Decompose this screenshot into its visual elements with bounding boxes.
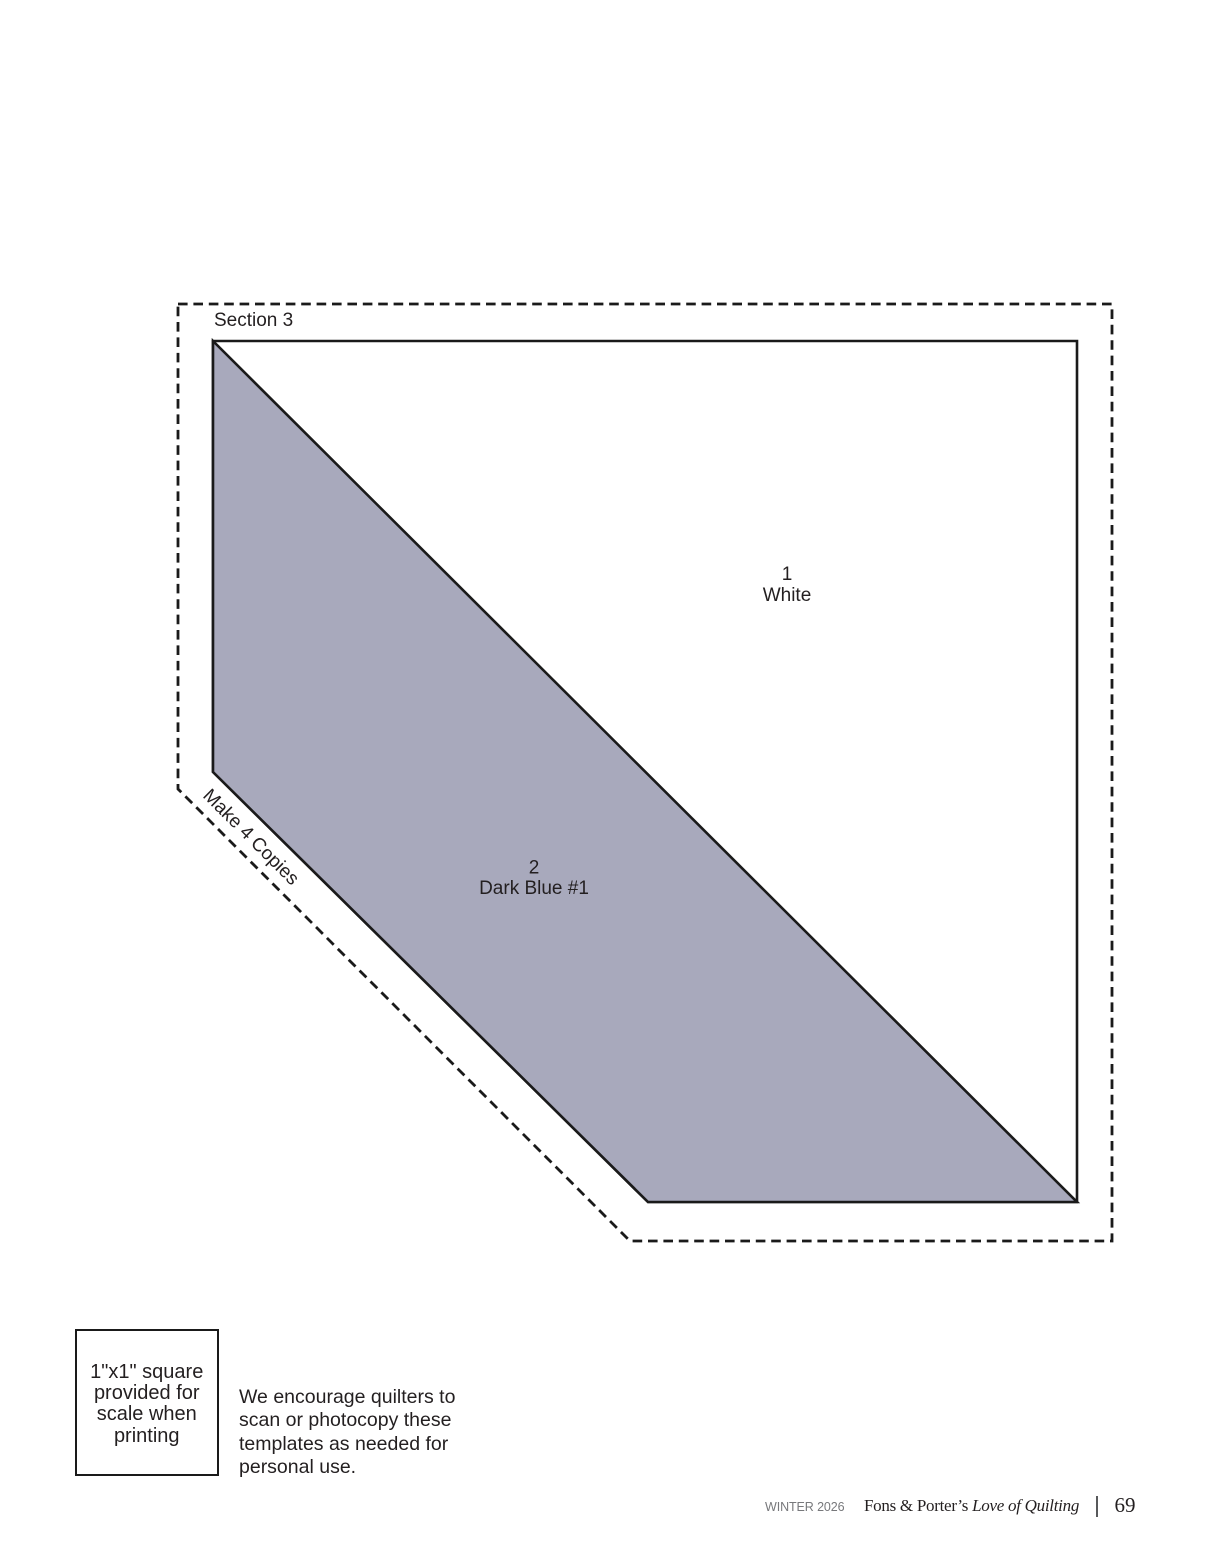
svg-text:1: 1 — [782, 564, 793, 585]
svg-text:White: White — [763, 585, 812, 606]
svg-text:Dark Blue #1: Dark Blue #1 — [479, 878, 589, 899]
svg-text:Section 3: Section 3 — [214, 310, 293, 331]
svg-text:2: 2 — [529, 858, 540, 879]
